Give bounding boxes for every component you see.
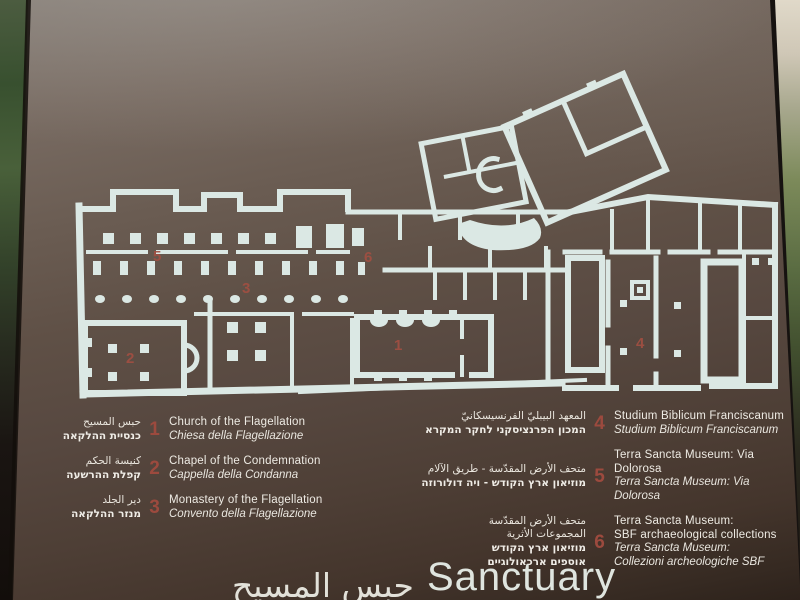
legend-number: 5 [591,467,608,486]
arabic-label: المعهد البيبليّ الفرنسيسكانيّ [398,410,586,423]
italian-label: Chiesa della Flagellazione [169,430,366,444]
hebrew-label: מוזיאון ארץ הקודש [398,541,586,555]
legend-rtl-labels: دير الجلد מנזר ההלקאה [56,494,141,521]
sign-photo: 1 2 3 4 5 6 حبس المسيح כנסיית ההלקאה 1 C… [0,0,800,600]
english-label: Terra Sancta Museum: [614,515,790,529]
plan-marker-2: 2 [126,350,134,367]
english-label-line2: SBF archaeological collections [614,529,790,543]
legend-left-column: حبس المسيح כנסיית ההלקאה 1 Church of the… [56,416,366,533]
english-label: Terra Sancta Museum: Via Dolorosa [614,449,790,476]
legend-item-5: متحف الأرض المقدّسة - طريق الآلام מוזיאו… [398,449,790,503]
hebrew-label: קפלת ההרשעה [56,468,141,482]
english-label: Church of the Flagellation [169,416,366,430]
hebrew-label: מנזר ההלקאה [56,507,141,521]
legend-ltr-labels: Studium Biblicum Franciscanum Studium Bi… [614,410,790,437]
hebrew-label: המכון הפרנציסקני לחקר המקרא [398,423,586,437]
legend-rtl-labels: متحف الأرض المقدّسة - طريق الآلام מוזיאו… [398,463,586,490]
plan-walls [79,74,775,395]
legend-ltr-labels: Church of the Flagellation Chiesa della … [169,416,366,443]
legend-rtl-labels: المعهد البيبليّ الفرنسيسكانيّ המכון הפרנ… [398,410,586,437]
english-label: Studium Biblicum Franciscanum [614,410,790,424]
plan-marker-1: 1 [394,337,402,354]
plan-marker-5: 5 [153,248,161,265]
legend-number: 3 [146,498,163,517]
legend-ltr-labels: Terra Sancta Museum: Via Dolorosa Terra … [614,449,790,503]
legend-number: 4 [591,414,608,433]
plan-pillars [86,80,775,381]
legend-ltr-labels: Chapel of the Condemnation Cappella dell… [169,455,366,482]
plan-marker-4: 4 [636,335,645,352]
arabic-label: حبس المسيح [56,416,141,429]
italian-label-line2: Collezioni archeologiche SBF [614,556,790,570]
heading-arabic: حبس المسيح [232,566,414,600]
italian-label: Terra Sancta Museum: [614,542,790,556]
plan-marker-3: 3 [242,280,250,297]
legend-number: 1 [146,420,163,439]
plan-marker-6: 6 [364,249,372,266]
legend-item-2: كنيسة الحكم קפלת ההרשעה 2 Chapel of the … [56,455,366,482]
english-label: Monastery of the Flagellation [169,494,366,508]
arabic-label: دير الجلد [56,494,141,507]
legend-ltr-labels: Terra Sancta Museum: SBF archaeological … [614,515,790,569]
hebrew-label: כנסיית ההלקאה [56,429,141,443]
hebrew-label: מוזיאון ארץ הקודש - ויה דולורוזה [398,476,586,490]
legend-number: 6 [591,533,608,552]
arabic-label: متحف الأرض المقدّسة - طريق الآلام [398,463,586,476]
arabic-label-line2: المجموعات الأثرية [398,528,586,541]
legend-rtl-labels: حبس المسيح כנסיית ההלקאה [56,416,141,443]
arabic-label: كنيسة الحكم [56,455,141,468]
italian-label: Convento della Flagellazione [169,508,366,522]
italian-label: Terra Sancta Museum: Via Dolorosa [614,476,790,503]
legend-item-4: المعهد البيبليّ الفرنسيسكانيّ המכון הפרנ… [398,410,790,437]
legend-number: 2 [146,459,163,478]
english-label: Chapel of the Condemnation [169,455,366,469]
heading-english: Sanctuary [427,555,616,600]
arabic-label: متحف الأرض المقدّسة [398,515,586,528]
legend-rtl-labels: كنيسة الحكم קפלת ההרשעה [56,455,141,482]
italian-label: Cappella della Condanna [169,469,366,483]
italian-label: Studium Biblicum Franciscanum [614,424,790,438]
legend-ltr-labels: Monastery of the Flagellation Convento d… [169,494,366,521]
legend-item-3: دير الجلد מנזר ההלקאה 3 Monastery of the… [56,494,366,521]
legend-item-1: حبس المسيح כנסיית ההלקאה 1 Church of the… [56,416,366,443]
